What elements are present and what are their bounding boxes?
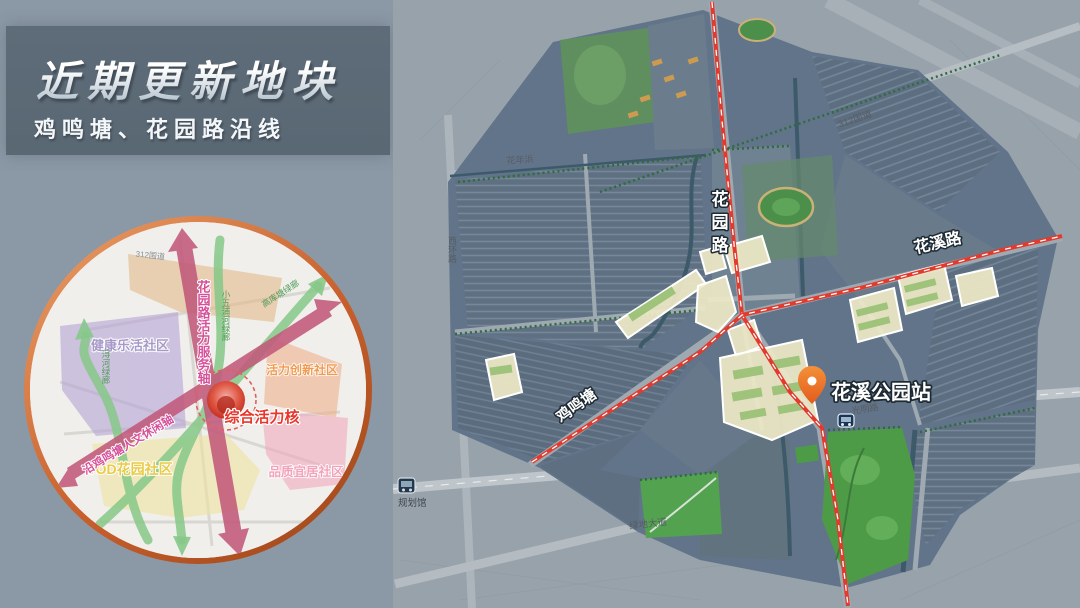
corridor-label-xunhe: 浔河绿廊 bbox=[101, 349, 111, 385]
inset-structure-diagram: 312国道 健康乐活社区 活力创新社区 TOD花园社区 品质宜居社区 花园路活力… bbox=[24, 216, 372, 564]
zone-label-innovation: 活力创新社区 bbox=[266, 362, 338, 377]
page-title: 近期更新地块 bbox=[36, 48, 342, 109]
poi-label: 规划馆 bbox=[398, 497, 427, 509]
station-pin-dot bbox=[808, 377, 817, 386]
zone-label-livable: 品质宜居社区 bbox=[268, 464, 344, 479]
inset-diagram-canvas: 312国道 健康乐活社区 活力创新社区 TOD花园社区 品质宜居社区 花园路活力… bbox=[30, 222, 366, 558]
axis-label-garden-road: 花园路活力服务轴 bbox=[196, 279, 211, 385]
slide: 近期更新地块 鸡鸣塘、花园路沿线 bbox=[0, 0, 1080, 608]
corridor-label-xiaowupu: 小五浦河绿廊 bbox=[221, 289, 231, 342]
title-panel: 近期更新地块 鸡鸣塘、花园路沿线 bbox=[6, 26, 390, 155]
station-label: 花溪公园站 bbox=[831, 380, 931, 404]
road-label-huanianbang: 花年浜 bbox=[506, 153, 534, 166]
page-subtitle: 鸡鸣塘、花园路沿线 bbox=[34, 112, 286, 144]
road-label-xihuan: 西环路 bbox=[447, 236, 457, 264]
core-label: 综合活力核 bbox=[224, 408, 299, 426]
metro-station-icon bbox=[838, 414, 854, 427]
aerial-map: 312国道 花年浜 西环路 光明路 绿地大道 花园路 花溪路 鸡鸣塘 花溪公园站 bbox=[393, 0, 1080, 608]
road-label-huayuan: 花园路 bbox=[709, 189, 729, 259]
bus-station-icon bbox=[398, 478, 415, 493]
